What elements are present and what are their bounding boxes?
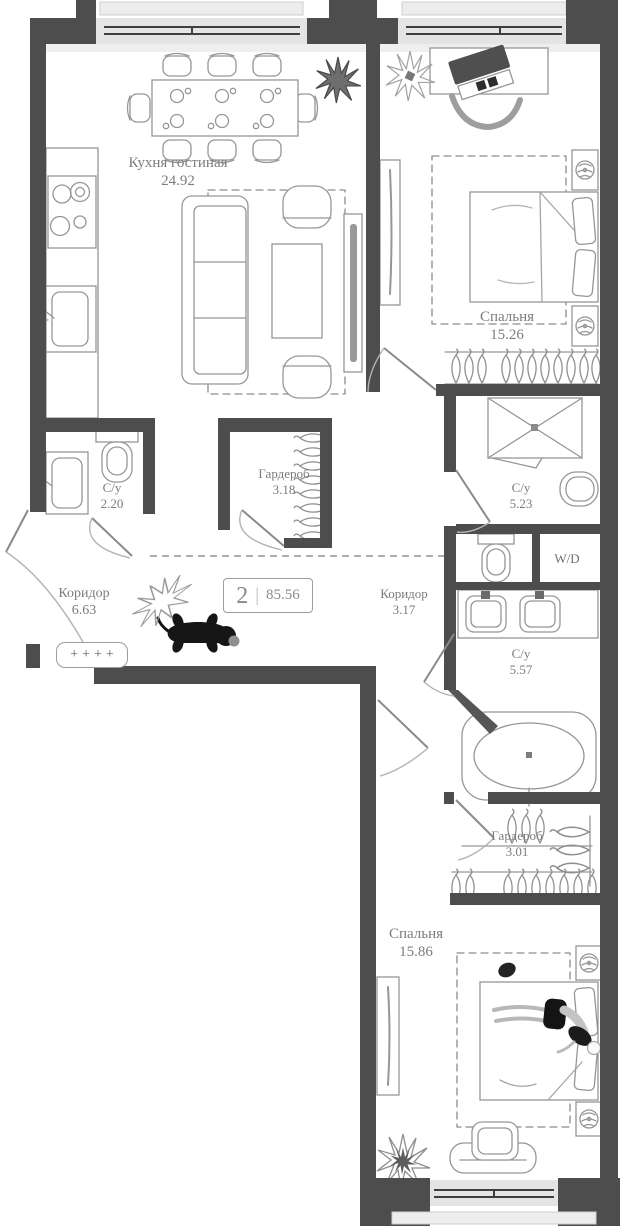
- dog-figure: [158, 612, 240, 655]
- room-label-bath-3: С/у 5.57: [510, 646, 533, 678]
- room-name: Спальня: [480, 308, 534, 326]
- room-area: 3.17: [380, 602, 428, 618]
- unit-total-area: 85.56: [266, 588, 300, 603]
- armchair: [283, 186, 331, 228]
- coffee-table: [272, 244, 322, 338]
- room-name: Гардероб: [258, 466, 309, 482]
- room-label-wardrobe-1: Гардероб 3.18: [258, 466, 309, 498]
- room-label-wardrobe-2: Гардероб 3.01: [491, 828, 542, 860]
- pillow: [572, 197, 596, 245]
- room-area: 5.23: [510, 496, 533, 512]
- room-name: Гардероб: [491, 828, 542, 844]
- room-name: Коридор: [58, 585, 109, 602]
- room-label-bath-2: С/у 5.23: [510, 480, 533, 512]
- room-area: 5.57: [510, 662, 533, 678]
- room-area: 15.26: [480, 326, 534, 344]
- shoe-rack-symbols: ++++: [70, 647, 118, 663]
- tv-icon: [350, 224, 357, 362]
- room-area: 3.18: [258, 482, 309, 498]
- room-name: Кухня гостиная: [128, 154, 227, 172]
- room-name: С/у: [101, 480, 124, 496]
- washer-dryer-label: W/D: [554, 551, 579, 567]
- room-label-bath-1: С/у 2.20: [101, 480, 124, 512]
- faucet-icon: [481, 591, 490, 599]
- pillow: [572, 249, 596, 297]
- toilet: [482, 544, 510, 582]
- sofa: [182, 196, 248, 384]
- room-name: Спальня: [389, 925, 443, 943]
- room-label-corridor-2: Коридор 3.17: [380, 586, 428, 618]
- room-label-bedroom-1: Спальня 15.26: [480, 308, 534, 345]
- room-label-bedroom-2: Спальня 15.86: [389, 925, 443, 962]
- room-area: 2.20: [101, 496, 124, 512]
- room-name: С/у: [510, 480, 533, 496]
- room-area: 15.86: [389, 943, 443, 961]
- toilet-tank: [478, 534, 514, 544]
- floor-plan: Кухня гостиная 24.92 Спальня 15.26 Гарде…: [0, 0, 630, 1226]
- room-label-corridor-1: Коридор 6.63: [58, 585, 109, 619]
- desk-chair: [452, 96, 520, 127]
- room-area: 6.63: [58, 602, 109, 619]
- unit-number: 2: [236, 584, 248, 608]
- shoe-rack: ++++: [56, 642, 128, 668]
- dining-set: [128, 54, 318, 163]
- bag-icon: [496, 960, 518, 980]
- faucet-icon: [535, 591, 544, 599]
- window-sill: [46, 44, 366, 52]
- room-name: Коридор: [380, 586, 428, 602]
- room-area: 3.01: [491, 844, 542, 860]
- armchair: [283, 356, 331, 398]
- room-area: 24.92: [128, 172, 227, 190]
- room-name: С/у: [510, 646, 533, 662]
- unit-info-badge: 2 | 85.56: [223, 578, 313, 613]
- room-label-kitchen-living: Кухня гостиная 24.92: [128, 154, 227, 191]
- badge-divider: |: [255, 586, 259, 605]
